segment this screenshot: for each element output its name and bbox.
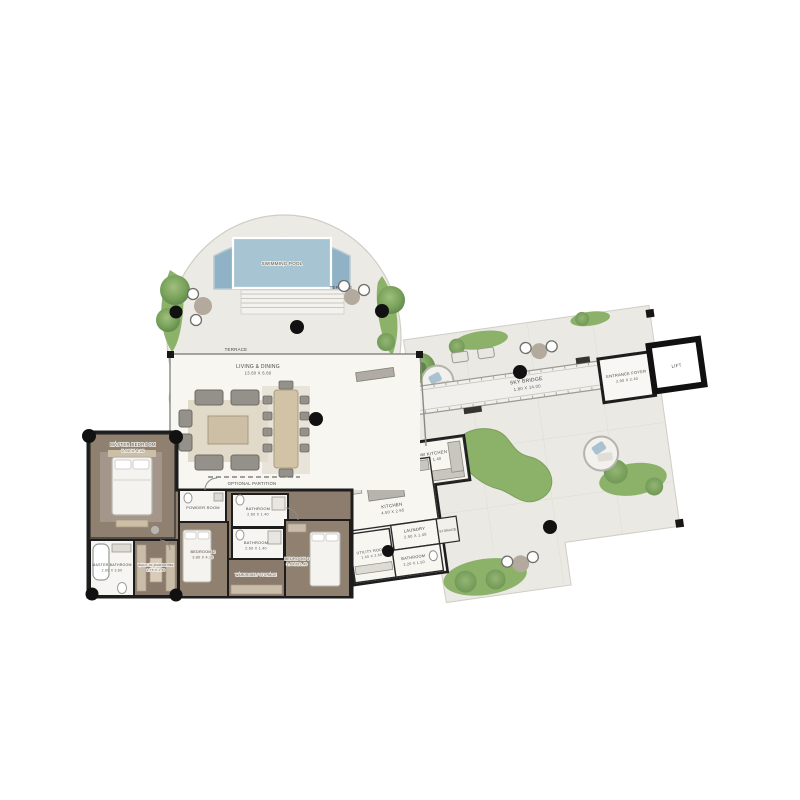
- bathroom-3-dims: 2.60 X 1.40: [245, 547, 267, 551]
- bathroom-2-dims: 2.60 X 1.40: [247, 513, 269, 517]
- bedroom-3: BEDROOM 3 3.60 X 3.40: [284, 520, 350, 597]
- storage: STORAGE: [436, 516, 459, 544]
- sofa-set: [179, 390, 268, 470]
- master-bedroom-label: MASTER BEDROOM: [110, 442, 156, 447]
- column: [82, 429, 96, 443]
- column: [382, 545, 394, 557]
- lounge-chair: [451, 351, 468, 363]
- dining-set: [262, 381, 310, 477]
- wardrobe-storage: WARDROBE / STORAGE: [228, 559, 285, 597]
- pillow: [133, 460, 149, 469]
- dining-table: [274, 390, 298, 468]
- sofa: [195, 455, 223, 470]
- lift-room: LIFT: [649, 339, 705, 392]
- wardrobe-cabinet: [288, 524, 306, 532]
- pillow: [185, 532, 196, 539]
- bedroom-3-label: BEDROOM 3: [284, 557, 309, 561]
- coffee-table: [208, 416, 248, 444]
- column: [290, 320, 304, 334]
- bathroom-2-label: BATHROOM: [246, 506, 270, 511]
- swimming-pool-label: SWIMMING POOL: [261, 261, 302, 266]
- basin: [214, 493, 223, 501]
- column: [543, 520, 557, 534]
- column: [309, 412, 323, 426]
- powder-room: POWDER ROOM: [179, 490, 226, 522]
- master-bathroom: MASTER BATHROOM 2.60 X 3.60: [90, 540, 134, 596]
- lounge-chair: [477, 347, 494, 359]
- master-bathroom-label: MASTER BATHROOM: [92, 563, 131, 567]
- bedroom-2: BEDROOM 2 3.80 X 4.10: [179, 522, 228, 597]
- floor-plan-page: SKY BRIDGE 1.80 X 14.00 ENTRANCE FOYER 2…: [0, 0, 800, 800]
- shower: [268, 531, 281, 544]
- column: [170, 589, 183, 602]
- master-bathroom-dims: 2.60 X 3.60: [102, 569, 123, 573]
- column: [375, 304, 389, 318]
- bathtub: [93, 544, 109, 580]
- toilet: [184, 493, 192, 503]
- sofa: [195, 390, 223, 405]
- toilet: [118, 583, 127, 594]
- sofa: [231, 455, 259, 470]
- entrance-foyer: ENTRANCE FOYER 2.90 X 2.40: [598, 352, 656, 403]
- stool: [151, 526, 160, 535]
- bush: [377, 333, 395, 351]
- walk-in-wardrobe: WALK-IN WARDROBE 2.75 X 1.90: [134, 540, 178, 596]
- toilet: [236, 530, 244, 540]
- wardrobe-cabinet: [166, 545, 175, 591]
- optional-partition-label: OPTIONAL PARTITION: [228, 481, 277, 486]
- bench: [116, 520, 148, 527]
- tree: [160, 275, 190, 305]
- pillow: [115, 460, 131, 469]
- pool-steps: [241, 290, 344, 314]
- living-dining-dims: 13.60 X 6.60: [245, 371, 272, 376]
- wall-corner: [646, 309, 655, 318]
- column: [169, 430, 183, 444]
- armchair: [179, 410, 192, 427]
- vanity: [112, 544, 131, 552]
- wall-corner: [675, 519, 684, 528]
- pillow: [312, 534, 324, 541]
- bathroom-3-label: BATHROOM: [244, 540, 268, 545]
- toilet: [236, 495, 244, 505]
- master-bedroom-dims: 5.90 X 4.20: [121, 448, 145, 453]
- shower: [272, 497, 285, 510]
- bedroom-2-label: BEDROOM 2: [190, 550, 215, 554]
- pillow: [326, 534, 338, 541]
- bedroom-3-dims: 3.60 X 3.40: [286, 563, 307, 567]
- column: [170, 306, 183, 319]
- wardrobe-cabinet: [137, 545, 146, 591]
- powder-room-label: POWDER ROOM: [186, 505, 219, 510]
- floor-plan-image: SKY BRIDGE 1.80 X 14.00 ENTRANCE FOYER 2…: [0, 0, 800, 800]
- bathroom-3: BATHROOM 2.60 X 1.40: [232, 528, 284, 559]
- bathroom-2: BATHROOM 2.60 X 1.40: [232, 494, 288, 527]
- pillow: [198, 532, 209, 539]
- terrace-label-lower: TERRACE: [225, 347, 248, 352]
- walk-in-wardrobe-label: WALK-IN WARDROBE: [138, 563, 174, 567]
- sofa: [231, 390, 259, 405]
- wardrobe-cabinet: [231, 585, 282, 594]
- living-dining-label: LIVING & DINING: [236, 364, 280, 370]
- bedroom-2-dims: 3.80 X 4.10: [192, 556, 213, 560]
- wall-corner: [416, 351, 423, 358]
- wardrobe-storage-label: WARDROBE / STORAGE: [235, 573, 276, 577]
- master-bedroom: MASTER BEDROOM 5.90 X 4.20: [90, 434, 175, 538]
- column: [513, 365, 527, 379]
- wall-corner: [167, 351, 174, 358]
- column: [86, 588, 99, 601]
- swimming-pool: SWIMMING POOL: [214, 238, 350, 290]
- walk-in-wardrobe-dims: 2.75 X 1.90: [147, 568, 166, 572]
